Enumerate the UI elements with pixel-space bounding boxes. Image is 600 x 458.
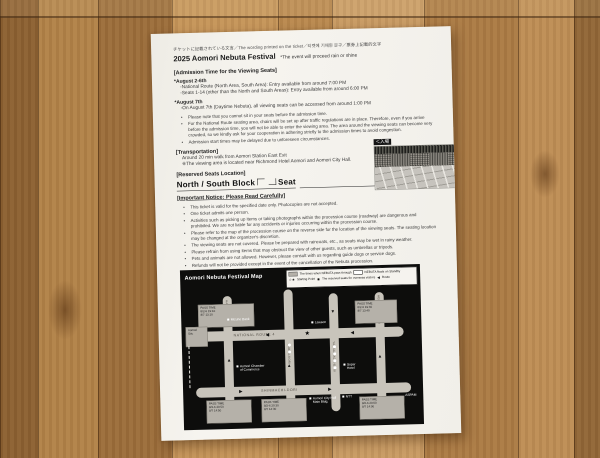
legend-pass-label: The times when NEBUTA pass through [300, 271, 352, 275]
poi-label: Super Hotel [347, 363, 356, 371]
seat-suffix: Seat [278, 178, 296, 187]
starting-point-star-icon: ★ [305, 330, 311, 336]
poi-lawson: Lawson [311, 321, 326, 325]
poi-marker-icon [236, 365, 238, 367]
map-title: Aomori Nebuta Festival Map [185, 273, 263, 281]
pass-time-box-bottom-left: PASS TIME 8/2-6 20:50 8/7 14:50 [206, 399, 252, 423]
seat-marker [288, 343, 291, 346]
seat-marker [333, 366, 336, 369]
paper-content: チケットに記載されている文言／The wording printed on th… [151, 26, 462, 441]
poi-marker-icon [311, 321, 313, 323]
route-arrow-left-icon: ◀ [266, 333, 270, 338]
open-bracket [257, 178, 265, 185]
poi-label: Aomori Chamber of Commerce [240, 364, 265, 372]
wood-knot [48, 280, 82, 340]
photo-of-ticket-on-table: チケットに記載されている文言／The wording printed on th… [0, 0, 600, 458]
poi-label: Mizuho Bank [231, 318, 250, 322]
route-arrow-up-icon: ▲ [227, 358, 232, 363]
page-title: 2025 Aomori Nebuta Festival [173, 52, 275, 63]
poi-label: Lawson [315, 321, 326, 325]
route-arrow-right-icon: ▶ [328, 387, 332, 392]
festival-map: Aomori Nebuta Festival Map The times whe… [180, 264, 424, 430]
ticket-notice-paper: チケットに記載されている文言／The wording printed on th… [151, 26, 462, 441]
legend-start-label: Starting Point [297, 278, 315, 281]
map-legend: The times when NEBUTA pass through NEBUT… [286, 267, 417, 288]
poi-mizuho-bank: Mizuho Bank [227, 318, 249, 322]
pass-time-box-bottom-center: PASS TIME 8/2-6 20:30 8/7 14:30 [261, 398, 307, 422]
pass-time-box-top-left: PASS TIME 8/2-6 19:10 8/7 13:10 [198, 303, 255, 327]
seat-marker [333, 359, 336, 362]
station-box: Aomori Sta. [185, 327, 208, 348]
poi-aspam: ASPAM [405, 393, 416, 397]
standby-swatch [353, 270, 362, 275]
legend-overseas-label: The reserved seats for overseas visitors [322, 276, 375, 280]
poi-marker-icon [309, 397, 311, 399]
poi-marker-icon [343, 364, 345, 366]
street-name-v2: SHOWA-DORI [287, 343, 291, 364]
poi-marker-icon [342, 396, 344, 398]
rain-or-shine-note: *The event will proceed rain or shine [280, 53, 357, 61]
photo-road [375, 165, 456, 189]
viewing-seats-photo [374, 144, 456, 190]
wood-knot [530, 150, 560, 198]
block-prefix: North / South Block [177, 179, 256, 190]
seat-marker [333, 345, 336, 348]
route-arrow-right-icon: ▶ [239, 389, 243, 394]
seat-location-line: North / South BlockSeat [177, 175, 387, 191]
seat-marker [333, 352, 336, 355]
close-bracket [269, 178, 277, 185]
starting-point-icon: ☆★ [289, 278, 295, 282]
route-arrow-icon: ◀ [377, 276, 380, 280]
seat-marker [288, 350, 291, 353]
poi-marker-icon [227, 319, 229, 321]
overseas-seats-icon: ◉ [317, 277, 320, 281]
poi-ntt: NTT [342, 395, 352, 399]
route-arrow-left-icon: ◀ [351, 330, 355, 335]
route-arrow-down-icon: ▼ [330, 309, 335, 314]
wood-board-seam [0, 0, 600, 18]
admission-bullets: Please note that you cannot sit in your … [175, 108, 436, 145]
poi-label: ASPAM [405, 393, 416, 397]
seat-location-text: North / South BlockSeat [177, 178, 296, 192]
pass-time-box-top-right: PASS TIME 8/2-6 19:40 8/7 13:40 [355, 300, 398, 324]
poi-chamber-of-commerce: Aomori Chamber of Commerce [236, 364, 264, 372]
route-arrow-up-icon: ▲ [287, 363, 292, 368]
legend-route-label: Route [382, 276, 390, 279]
pass-time-box-bottom-right: PASS TIME 8/2-6 20:00 8/7 14:00 [359, 395, 405, 419]
overseas-seats-line [188, 346, 190, 388]
route-arrow-up-icon: ▲ [378, 354, 383, 359]
pass-time-swatch [289, 272, 298, 277]
legend-standby-label: NEBUTA floats on Standby [364, 270, 400, 274]
poi-label: NTT [346, 395, 352, 399]
entrance-label: ＜入場 [374, 139, 392, 145]
poi-city-hall: Aomori City Hall Main Bldg. [309, 396, 336, 404]
poi-super-hotel: Super Hotel [343, 363, 355, 371]
poi-label: Aomori City Hall Main Bldg. [313, 396, 336, 404]
